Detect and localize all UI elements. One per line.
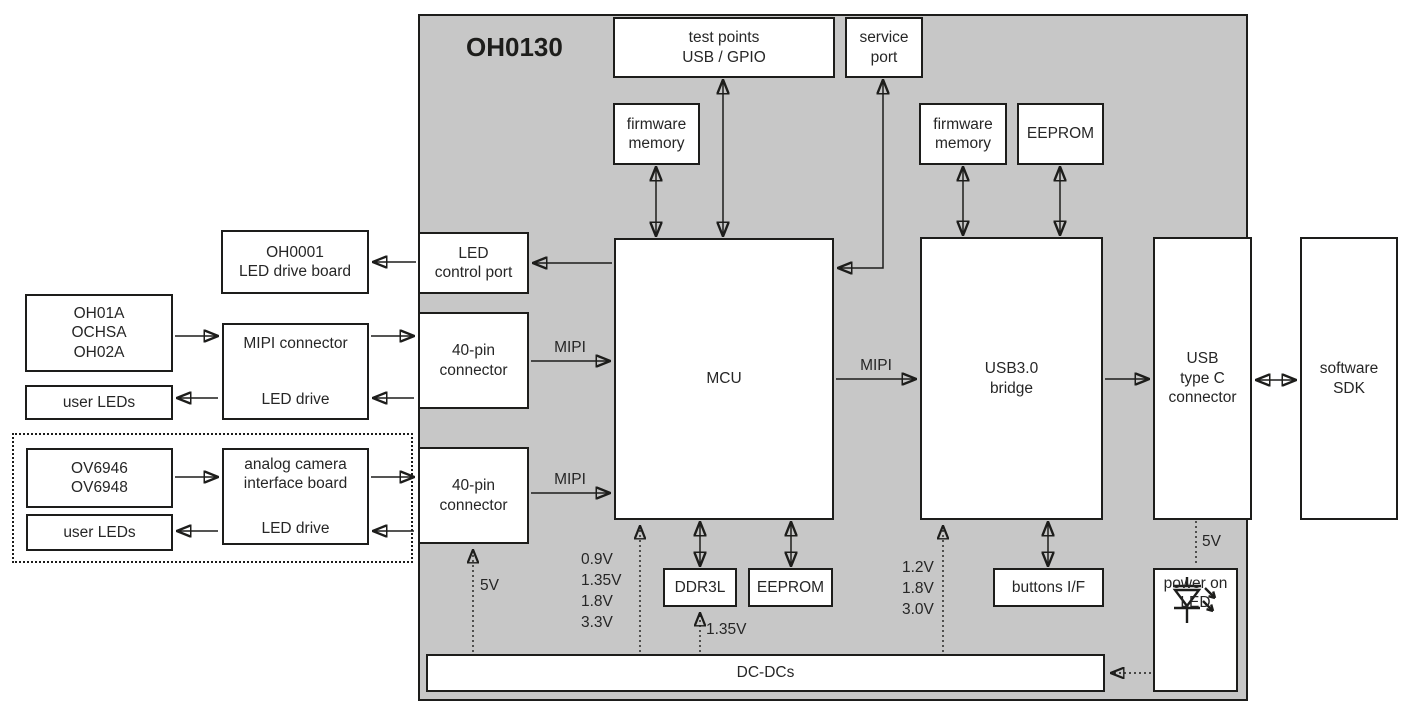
40pin-connector-top-box: 40-pin connector bbox=[418, 312, 529, 409]
40pin-supply-rail-label: 5V bbox=[480, 575, 499, 596]
led-control-port-box: LED control port bbox=[418, 232, 529, 294]
user-leds-top-box: user LEDs bbox=[25, 385, 173, 420]
usb3-bridge-box: USB3.0 bridge bbox=[920, 237, 1103, 520]
analog-interface-board-label: analog camera interface board bbox=[244, 455, 347, 494]
analog-sensors-box: OV6946 OV6948 bbox=[26, 448, 173, 508]
ddr3l-box: DDR3L bbox=[663, 568, 737, 607]
firmware-memory-usb-box: firmware memory bbox=[919, 103, 1007, 165]
40pin-connector-bottom-box: 40-pin connector bbox=[418, 447, 529, 544]
oh0001-led-drive-board-box: OH0001 LED drive board bbox=[221, 230, 369, 294]
mipi-bus-label-3: MIPI bbox=[848, 355, 904, 376]
user-leds-bottom-box: user LEDs bbox=[26, 514, 173, 551]
usb-type-c-connector-box: USB type C connector bbox=[1153, 237, 1252, 520]
mipi-bus-label-2: MIPI bbox=[542, 469, 598, 490]
mcu-box: MCU bbox=[614, 238, 834, 520]
firmware-memory-mcu-box: firmware memory bbox=[613, 103, 700, 165]
board-title: OH0130 bbox=[466, 32, 563, 63]
eeprom-bottom-box: EEPROM bbox=[748, 568, 833, 607]
mipi-bus-label-1: MIPI bbox=[542, 337, 598, 358]
usb-bridge-supply-rails-label: 1.2V 1.8V 3.0V bbox=[902, 557, 934, 620]
mipi-sensors-box: OH01A OCHSA OH02A bbox=[25, 294, 173, 372]
mcu-supply-rails-label: 0.9V 1.35V 1.8V 3.3V bbox=[581, 549, 622, 633]
service-port-box: service port bbox=[845, 17, 923, 78]
mipi-connector-label: MIPI connector bbox=[243, 334, 347, 353]
ddr-supply-rail-label: 1.35V bbox=[706, 619, 747, 640]
dc-dcs-box: DC-DCs bbox=[426, 654, 1105, 692]
buttons-if-box: buttons I/F bbox=[993, 568, 1104, 607]
software-sdk-box: software SDK bbox=[1300, 237, 1398, 520]
mipi-led-drive-label: LED drive bbox=[261, 390, 329, 409]
power-on-led-label: power on LED bbox=[1164, 574, 1228, 613]
power-on-led-box: power on LED bbox=[1153, 568, 1238, 692]
eeprom-top-box: EEPROM bbox=[1017, 103, 1104, 165]
test-points-box: test points USB / GPIO bbox=[613, 17, 835, 78]
block-diagram: OH0130 test points USB / GPIO service po… bbox=[0, 0, 1421, 723]
power-led-supply-rail-label: 5V bbox=[1202, 531, 1221, 552]
analog-led-drive-label: LED drive bbox=[261, 519, 329, 538]
